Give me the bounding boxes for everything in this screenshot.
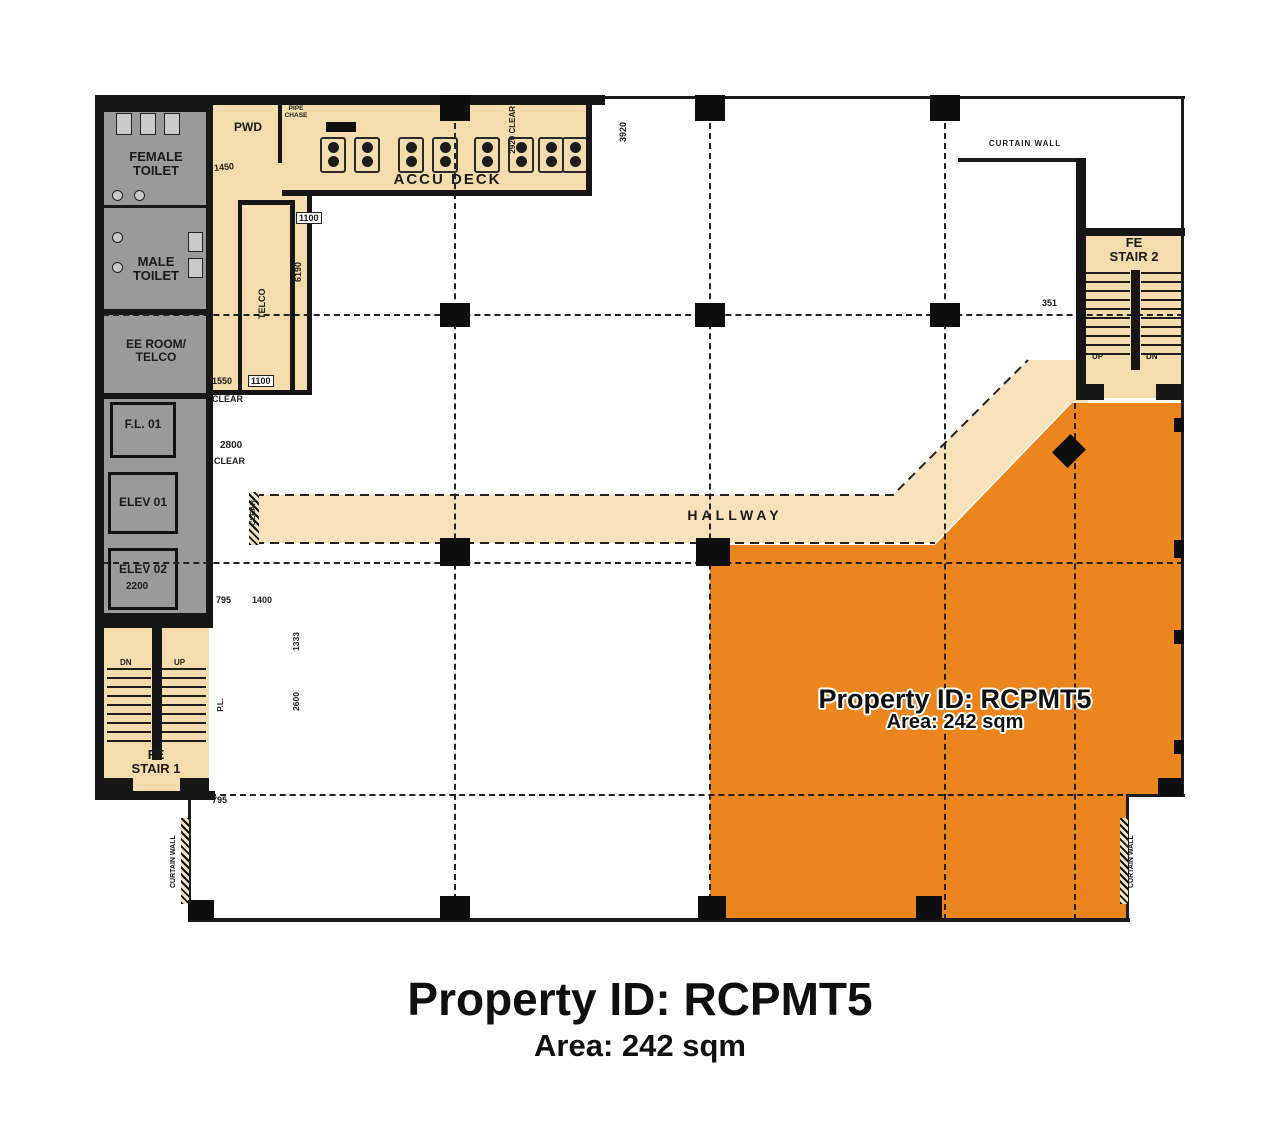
ee-telco-label: EE ROOM/TELCO bbox=[103, 338, 209, 364]
column bbox=[698, 896, 726, 920]
accu-deck-label: ACCU DECK bbox=[360, 172, 535, 189]
sink-fixture bbox=[112, 190, 123, 201]
pl-label: P.L. bbox=[216, 698, 225, 712]
toilet-stall bbox=[140, 113, 156, 135]
curtain-wall-label-top: CURTAIN WALL bbox=[975, 140, 1075, 149]
grid-line bbox=[454, 103, 456, 920]
column bbox=[440, 896, 470, 920]
elev1-label: ELEV 01 bbox=[106, 496, 180, 509]
toilet-stall bbox=[116, 113, 132, 135]
wall bbox=[95, 613, 213, 628]
column bbox=[696, 538, 730, 566]
wall bbox=[95, 791, 215, 800]
wall bbox=[1181, 98, 1184, 796]
dim-1450: 1450 bbox=[214, 161, 235, 173]
caption-property-id: Property ID: RCPMT5 bbox=[0, 972, 1280, 1026]
column bbox=[440, 538, 470, 566]
clear-label-hallway: CLEAR bbox=[248, 500, 257, 526]
wall bbox=[1131, 270, 1140, 370]
cabinet bbox=[326, 122, 356, 132]
grid-line bbox=[210, 794, 1183, 796]
dim-2800: 2800 bbox=[220, 440, 242, 451]
column bbox=[440, 95, 470, 121]
highlight-area: Area: 242 sqm bbox=[795, 711, 1115, 734]
stair2-treads bbox=[1141, 272, 1181, 358]
column bbox=[1174, 540, 1184, 558]
clear-label-b: CLEAR bbox=[214, 456, 245, 466]
grid-line bbox=[103, 562, 1183, 564]
curtain-wall-label-left: CURTAIN WALL bbox=[170, 822, 182, 902]
stair2-dn-label: DN bbox=[1146, 352, 1158, 361]
dim-6190: 6190 bbox=[293, 262, 303, 282]
stair2-up-label: UP bbox=[1092, 352, 1103, 361]
stair2-treads bbox=[1085, 272, 1130, 358]
pwd-label: PWD bbox=[226, 121, 270, 134]
column bbox=[930, 95, 960, 121]
fl01-label: F.L. 01 bbox=[108, 418, 178, 431]
stair1-treads bbox=[107, 668, 151, 748]
curtain-wall-hatch bbox=[181, 818, 189, 904]
curtain-wall-label-right: CURTAIN WALL bbox=[1128, 822, 1140, 902]
pipe-chase-label: PIPECHASE bbox=[282, 105, 310, 119]
dim-795-bottom: 795 bbox=[212, 795, 227, 805]
caption-area: Area: 242 sqm bbox=[0, 1028, 1280, 1064]
dim-1100-top: 1100 bbox=[296, 212, 322, 224]
wall bbox=[290, 205, 295, 390]
desk-icon bbox=[354, 137, 380, 173]
wall bbox=[188, 918, 1130, 922]
wall bbox=[307, 196, 312, 395]
dim-2920-clear: 2920 CLEAR bbox=[508, 106, 517, 154]
curtain-wall-hatch bbox=[1120, 818, 1128, 904]
column bbox=[1174, 630, 1184, 644]
wall bbox=[1076, 384, 1104, 400]
column bbox=[1174, 740, 1184, 754]
wall bbox=[95, 95, 104, 795]
wall bbox=[1076, 158, 1086, 398]
stair1-dn-label: DN bbox=[120, 658, 132, 667]
dim-795-top: 795 bbox=[216, 595, 231, 605]
dim-2200: 2200 bbox=[126, 581, 148, 592]
wall bbox=[152, 628, 162, 760]
male-toilet-label: MALETOILET bbox=[103, 255, 209, 284]
desk-icon bbox=[562, 137, 588, 173]
stair1-label: FESTAIR 1 bbox=[110, 748, 202, 777]
desk-icon bbox=[538, 137, 564, 173]
desk-icon bbox=[432, 137, 458, 173]
toilet-stall bbox=[164, 113, 180, 135]
stair1-up-label: UP bbox=[174, 658, 185, 667]
grid-line bbox=[1074, 403, 1076, 920]
column bbox=[440, 303, 470, 327]
column bbox=[1158, 778, 1183, 796]
elev2-car bbox=[108, 548, 178, 610]
desk-icon bbox=[474, 137, 500, 173]
clear-label-a: CLEAR bbox=[212, 394, 243, 404]
wall bbox=[95, 95, 210, 112]
column bbox=[695, 95, 725, 121]
elev2-label: ELEV 02 bbox=[106, 563, 180, 576]
wall bbox=[605, 96, 1185, 99]
curtain-wall-line bbox=[958, 158, 1080, 162]
sink-fixture bbox=[134, 190, 145, 201]
column bbox=[930, 303, 960, 327]
column bbox=[695, 303, 725, 327]
urinal-fixture bbox=[112, 232, 123, 243]
column bbox=[1174, 418, 1184, 432]
dim-1550: 1550 bbox=[212, 376, 232, 386]
stair1-treads bbox=[162, 668, 206, 748]
column bbox=[916, 896, 942, 920]
hallway-label: HALLWAY bbox=[660, 508, 810, 523]
wall bbox=[282, 190, 592, 196]
stair2-label: FESTAIR 2 bbox=[1090, 236, 1178, 265]
dim-1400: 1400 bbox=[252, 595, 272, 605]
desk-icon bbox=[320, 137, 346, 173]
wall bbox=[1156, 384, 1183, 400]
column bbox=[188, 900, 214, 920]
wall bbox=[586, 103, 592, 196]
dim-1333: 1333 bbox=[291, 632, 301, 651]
dim-2600: 2600 bbox=[291, 692, 301, 711]
wall bbox=[238, 200, 295, 205]
floorplan-listing-image: { "caption": { "line1": "Property ID: RC… bbox=[0, 0, 1280, 1129]
wall bbox=[209, 103, 213, 628]
dim-3920: 3920 bbox=[618, 122, 628, 142]
dim-1100-bottom: 1100 bbox=[248, 375, 274, 387]
telco-shaft-label: TELCO bbox=[258, 278, 272, 330]
toilet-stall bbox=[188, 232, 203, 252]
female-toilet-label: FEMALETOILET bbox=[103, 150, 209, 179]
wall bbox=[238, 205, 242, 390]
grid-line bbox=[944, 103, 946, 920]
dim-351: 351 bbox=[1042, 298, 1057, 308]
desk-icon bbox=[398, 137, 424, 173]
